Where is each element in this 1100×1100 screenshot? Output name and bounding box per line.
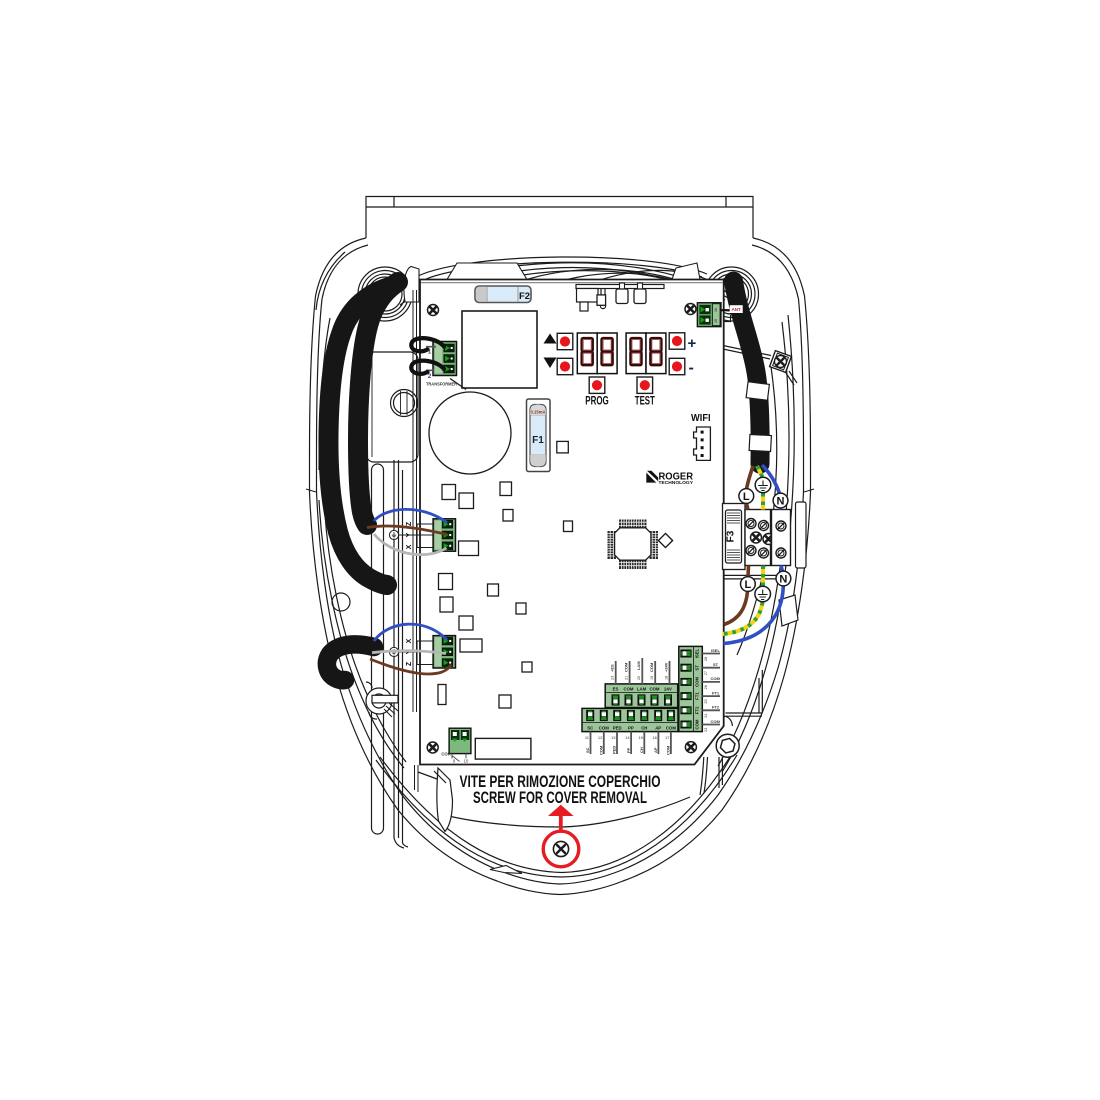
svg-text:COM: COM: [694, 719, 699, 729]
svg-text:L: L: [743, 491, 750, 503]
svg-text:COM: COM: [623, 687, 633, 692]
svg-text:+ES: +ES: [610, 664, 615, 672]
svg-text:26: 26: [704, 685, 708, 689]
svg-text:WIFI: WIFI: [691, 413, 711, 424]
svg-text:ISEL: ISEL: [694, 648, 699, 658]
svg-text:23: 23: [611, 676, 615, 680]
svg-text:TEST: TEST: [635, 396, 655, 408]
svg-text:15: 15: [638, 735, 643, 740]
svg-text:F2: F2: [519, 291, 530, 302]
svg-text:COM: COM: [694, 676, 699, 686]
svg-text:24: 24: [704, 714, 708, 718]
svg-text:24V: 24V: [664, 687, 672, 692]
svg-text:16: 16: [652, 735, 657, 740]
svg-text:FT1: FT1: [694, 692, 699, 700]
svg-text:COM: COM: [666, 726, 676, 731]
svg-text:2: 2: [428, 373, 432, 380]
svg-text:CH: CH: [641, 726, 647, 731]
svg-text:COM: COM: [623, 662, 628, 672]
svg-text:AP: AP: [653, 747, 658, 753]
svg-text:COM: COM: [649, 662, 654, 672]
svg-text:CH: CH: [639, 747, 644, 753]
svg-text:FT2: FT2: [712, 705, 720, 710]
svg-text:PROG: PROG: [585, 396, 609, 408]
svg-text:LAM: LAM: [637, 687, 647, 692]
svg-text:ST: ST: [713, 662, 719, 667]
svg-text:+24V: +24V: [663, 662, 668, 672]
svg-text:ISEL: ISEL: [711, 648, 720, 653]
svg-text:Z: Z: [406, 521, 413, 526]
svg-text:COM: COM: [599, 726, 609, 731]
svg-text:3.15mA: 3.15mA: [531, 410, 546, 415]
svg-text:COM: COM: [711, 676, 721, 681]
svg-text:ES: ES: [613, 687, 619, 692]
svg-text:10: 10: [464, 759, 469, 764]
svg-text:PP: PP: [628, 726, 634, 731]
svg-text:SC: SC: [587, 726, 593, 731]
svg-text:TECHNOLOGY: TECHNOLOGY: [659, 480, 694, 485]
svg-text:X: X: [406, 638, 413, 643]
svg-text:AP: AP: [655, 726, 661, 731]
svg-text:FT2: FT2: [694, 706, 699, 714]
svg-text:N: N: [779, 574, 787, 586]
svg-text:PP: PP: [626, 747, 631, 753]
svg-text:N: N: [777, 496, 785, 508]
svg-text:COM: COM: [649, 687, 659, 692]
svg-text:20: 20: [637, 676, 641, 680]
svg-text:X: X: [406, 544, 413, 549]
svg-text:COM: COM: [599, 745, 604, 755]
svg-text:23: 23: [704, 728, 708, 732]
svg-text:F3: F3: [726, 530, 737, 542]
svg-text:F1: F1: [532, 435, 544, 446]
svg-text:14: 14: [625, 735, 630, 740]
svg-text:PED: PED: [613, 726, 622, 731]
svg-text:12: 12: [598, 735, 603, 740]
svg-text:18: 18: [664, 676, 668, 680]
svg-text:27: 27: [704, 671, 708, 675]
svg-text:15: 15: [714, 319, 718, 323]
svg-text:28: 28: [704, 657, 708, 661]
svg-text:TRANSFORMER: TRANSFORMER: [426, 382, 458, 387]
svg-text:COR: COR: [441, 752, 450, 757]
svg-text:16: 16: [714, 308, 718, 312]
svg-text:PED: PED: [612, 746, 617, 754]
svg-text:LAM: LAM: [636, 661, 641, 670]
svg-text:COM: COM: [666, 745, 671, 755]
svg-text:Y: Y: [406, 532, 413, 537]
svg-text:SCREW FOR COVER REMOVAL: SCREW FOR COVER REMOVAL: [473, 788, 647, 807]
svg-text:ST: ST: [694, 665, 699, 671]
svg-text:21: 21: [624, 676, 628, 680]
svg-text:25: 25: [704, 699, 708, 703]
svg-text:1: 1: [428, 349, 432, 356]
svg-text:Z: Z: [406, 661, 413, 666]
svg-text:COM: COM: [711, 719, 721, 724]
svg-text:SC: SC: [585, 747, 590, 753]
svg-text:ANT: ANT: [731, 307, 741, 312]
svg-text:FT1: FT1: [712, 690, 720, 695]
svg-text:17: 17: [665, 735, 670, 740]
svg-text:19: 19: [650, 676, 654, 680]
svg-text:-: -: [689, 360, 694, 377]
svg-text:+: +: [688, 335, 697, 352]
svg-text:L: L: [745, 579, 752, 591]
svg-text:13: 13: [611, 735, 616, 740]
